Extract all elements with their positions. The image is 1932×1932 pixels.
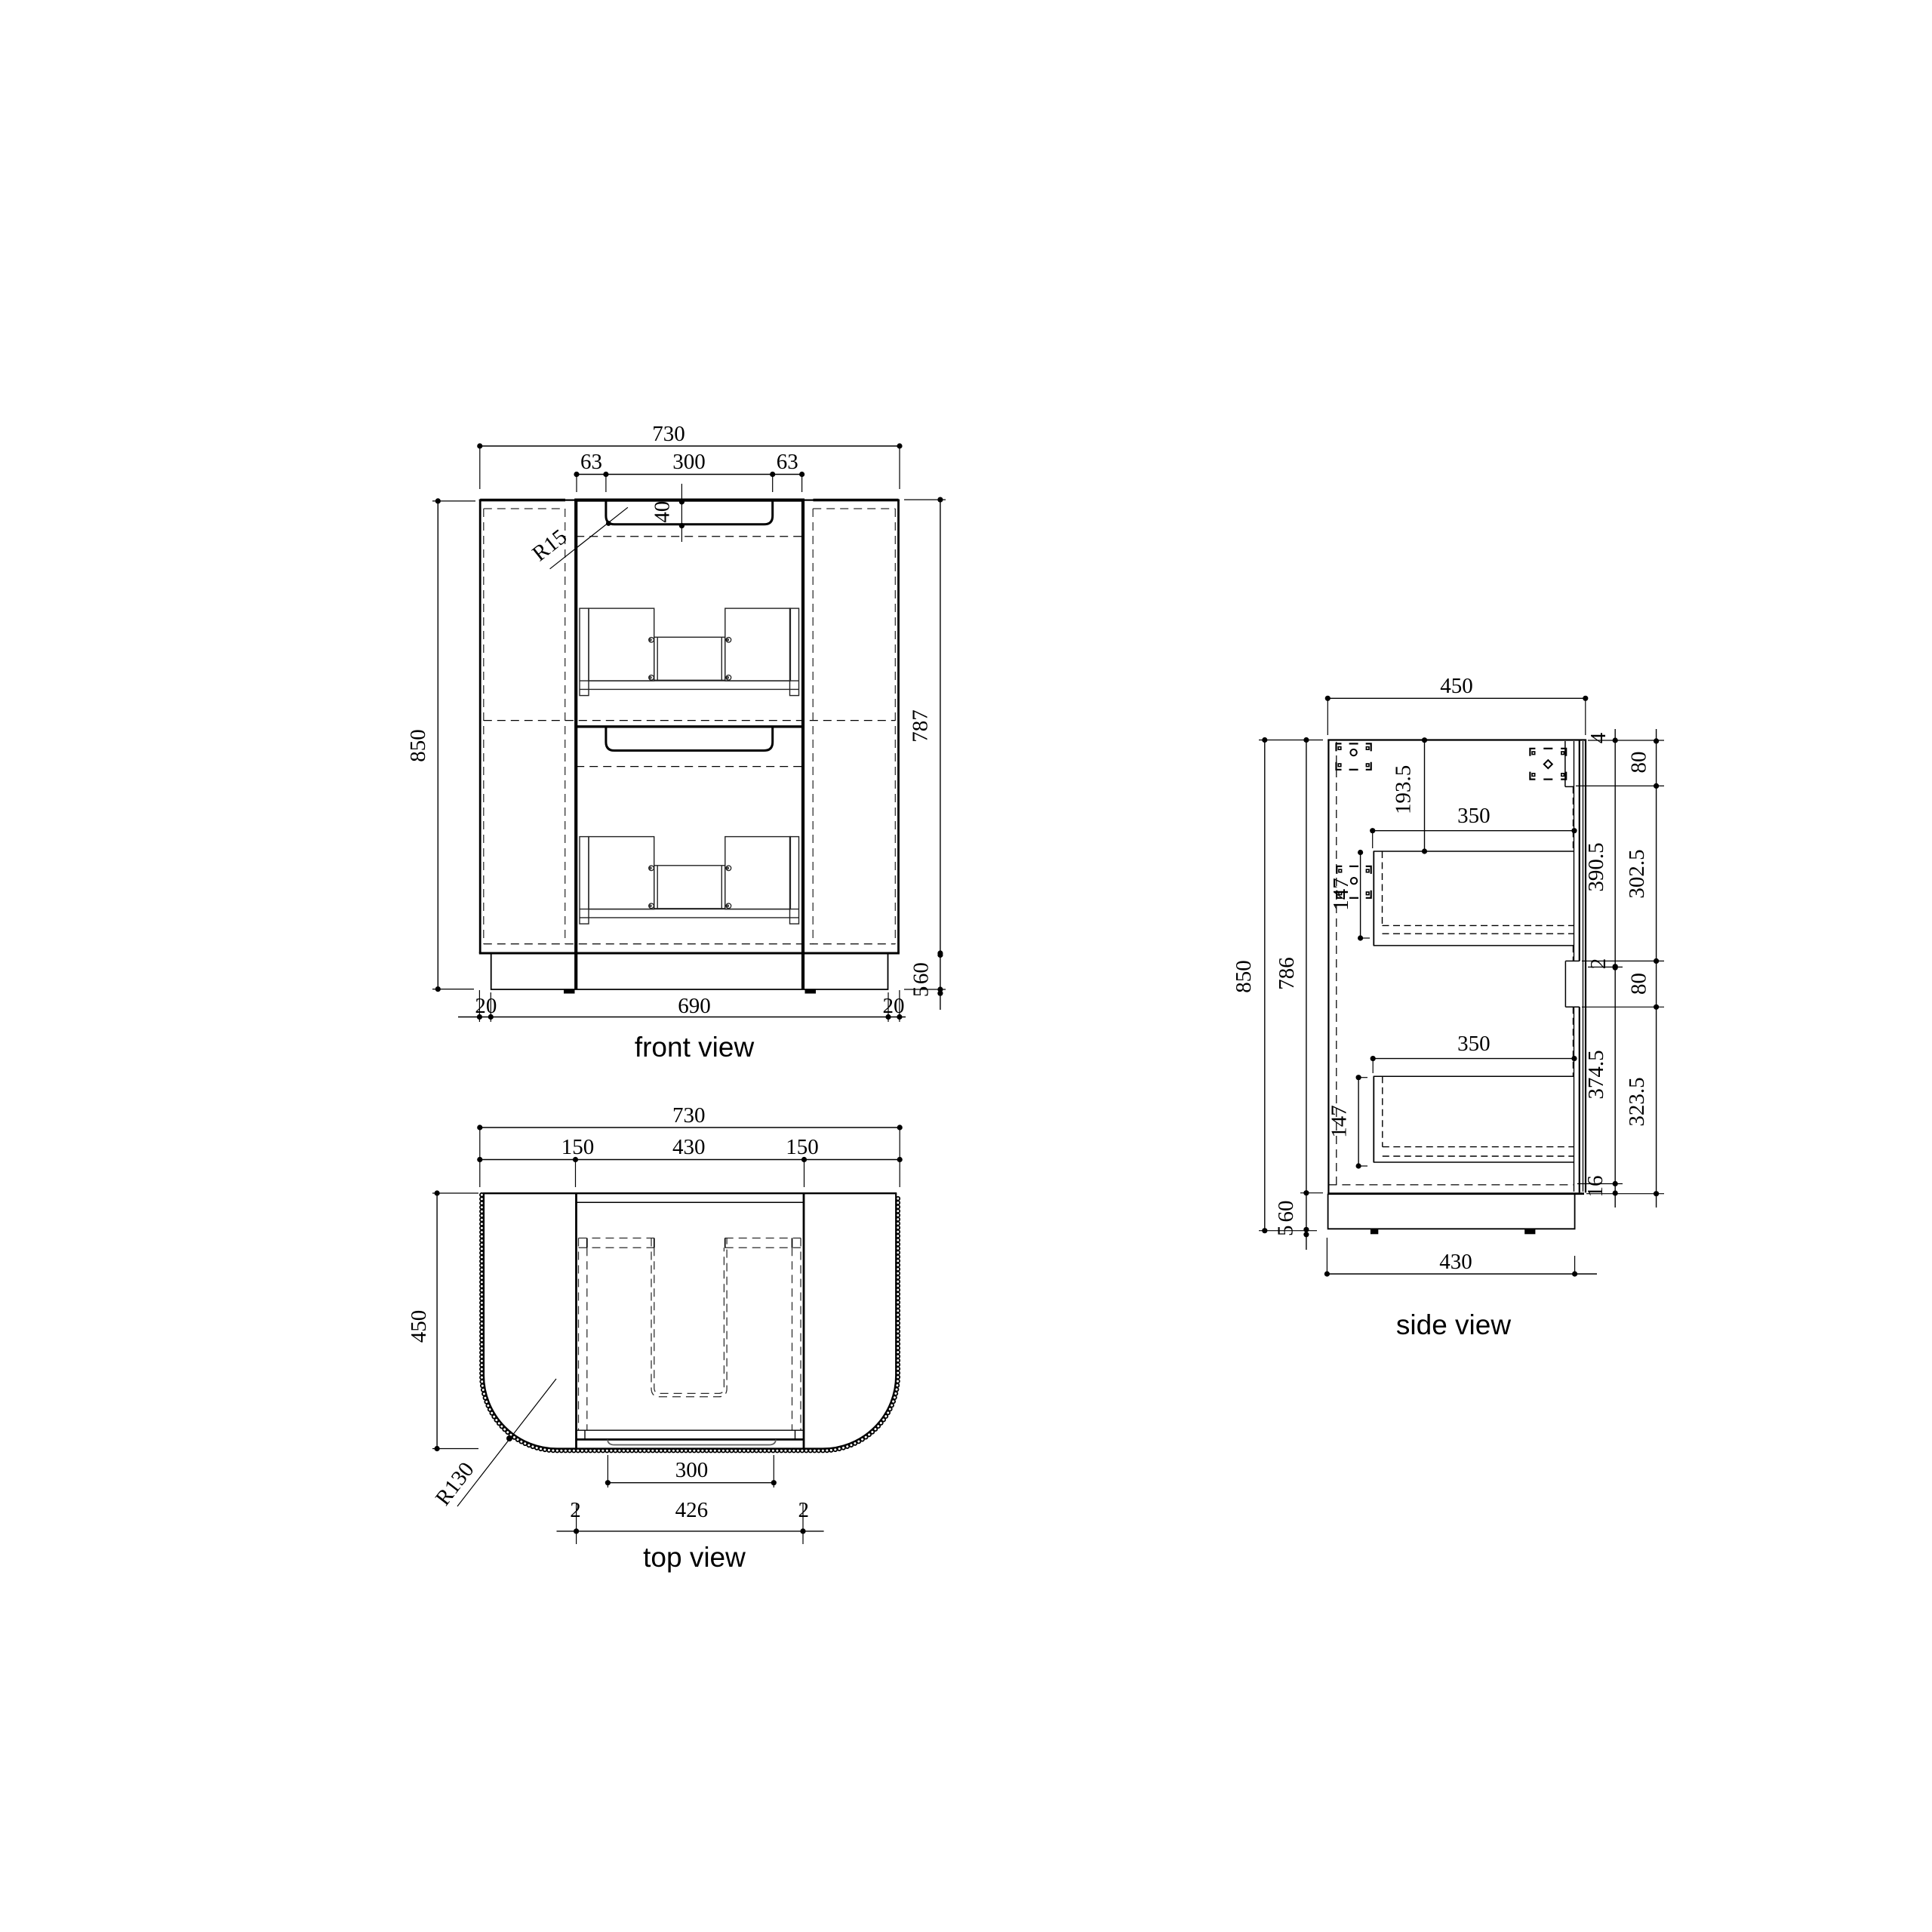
svg-text:786: 786 [1275, 957, 1299, 990]
svg-text:430: 430 [1439, 1250, 1472, 1274]
svg-text:730: 730 [672, 1103, 706, 1128]
svg-text:300: 300 [675, 1458, 709, 1482]
svg-text:374.5: 374.5 [1584, 1050, 1608, 1099]
svg-text:2: 2 [798, 1498, 810, 1522]
svg-text:40: 40 [651, 501, 675, 523]
svg-text:850: 850 [1232, 960, 1256, 993]
svg-text:top view: top view [643, 1542, 746, 1573]
svg-text:350: 350 [1457, 1032, 1491, 1056]
svg-text:20: 20 [475, 994, 497, 1018]
svg-text:426: 426 [675, 1498, 709, 1522]
svg-text:5: 5 [909, 986, 934, 998]
svg-text:850: 850 [406, 729, 430, 762]
svg-text:80: 80 [1627, 752, 1651, 774]
svg-text:5: 5 [1274, 1225, 1298, 1236]
svg-text:730: 730 [652, 422, 685, 446]
svg-text:390.5: 390.5 [1584, 842, 1608, 891]
svg-text:450: 450 [407, 1310, 431, 1343]
svg-text:60: 60 [909, 962, 934, 984]
svg-text:2: 2 [1586, 958, 1611, 970]
svg-text:2: 2 [570, 1498, 581, 1522]
svg-text:80: 80 [1627, 973, 1651, 995]
svg-text:430: 430 [672, 1135, 706, 1159]
svg-text:193.5: 193.5 [1391, 765, 1415, 814]
svg-text:63: 63 [777, 450, 798, 474]
svg-text:60: 60 [1274, 1201, 1298, 1223]
svg-text:63: 63 [580, 450, 602, 474]
svg-text:150: 150 [786, 1135, 819, 1159]
svg-text:147: 147 [1329, 878, 1353, 911]
svg-text:4: 4 [1586, 732, 1611, 743]
svg-text:147: 147 [1327, 1105, 1352, 1138]
svg-text:350: 350 [1457, 804, 1491, 828]
svg-text:150: 150 [561, 1135, 595, 1159]
svg-text:690: 690 [678, 994, 711, 1018]
svg-text:front view: front view [635, 1032, 755, 1063]
svg-text:302.5: 302.5 [1625, 849, 1649, 898]
svg-text:787: 787 [909, 709, 933, 743]
svg-text:300: 300 [672, 450, 706, 474]
svg-text:side view: side view [1396, 1309, 1511, 1340]
svg-text:450: 450 [1440, 674, 1473, 698]
svg-text:20: 20 [883, 994, 905, 1018]
svg-text:323.5: 323.5 [1625, 1077, 1649, 1126]
